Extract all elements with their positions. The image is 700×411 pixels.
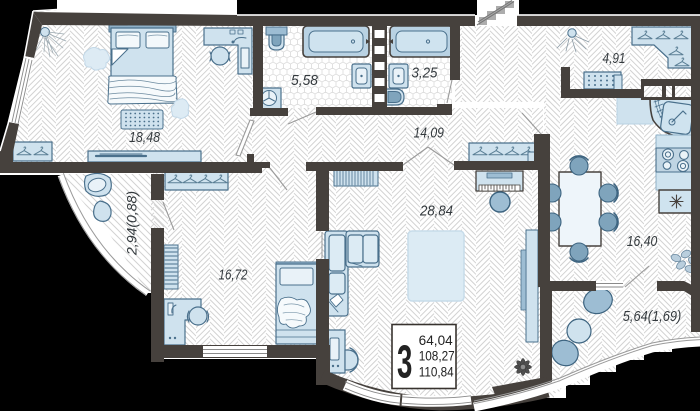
svg-text:14,09: 14,09 <box>413 126 444 142</box>
svg-text:16,72: 16,72 <box>219 268 248 284</box>
svg-text:5,64(1,69): 5,64(1,69) <box>623 309 682 325</box>
svg-text:64,04: 64,04 <box>419 333 453 348</box>
svg-text:16,40: 16,40 <box>627 234 658 250</box>
svg-text:3,25: 3,25 <box>412 66 439 82</box>
svg-text:108,27: 108,27 <box>419 349 455 364</box>
svg-text:110,84: 110,84 <box>419 365 454 380</box>
svg-text:28,84: 28,84 <box>419 204 453 220</box>
svg-text:18,48: 18,48 <box>129 129 161 146</box>
svg-text:2,94(0,88): 2,94(0,88) <box>124 191 140 256</box>
svg-text:4,91: 4,91 <box>603 51 626 67</box>
svg-text:5,58: 5,58 <box>291 73 318 89</box>
svg-text:3: 3 <box>397 337 412 388</box>
